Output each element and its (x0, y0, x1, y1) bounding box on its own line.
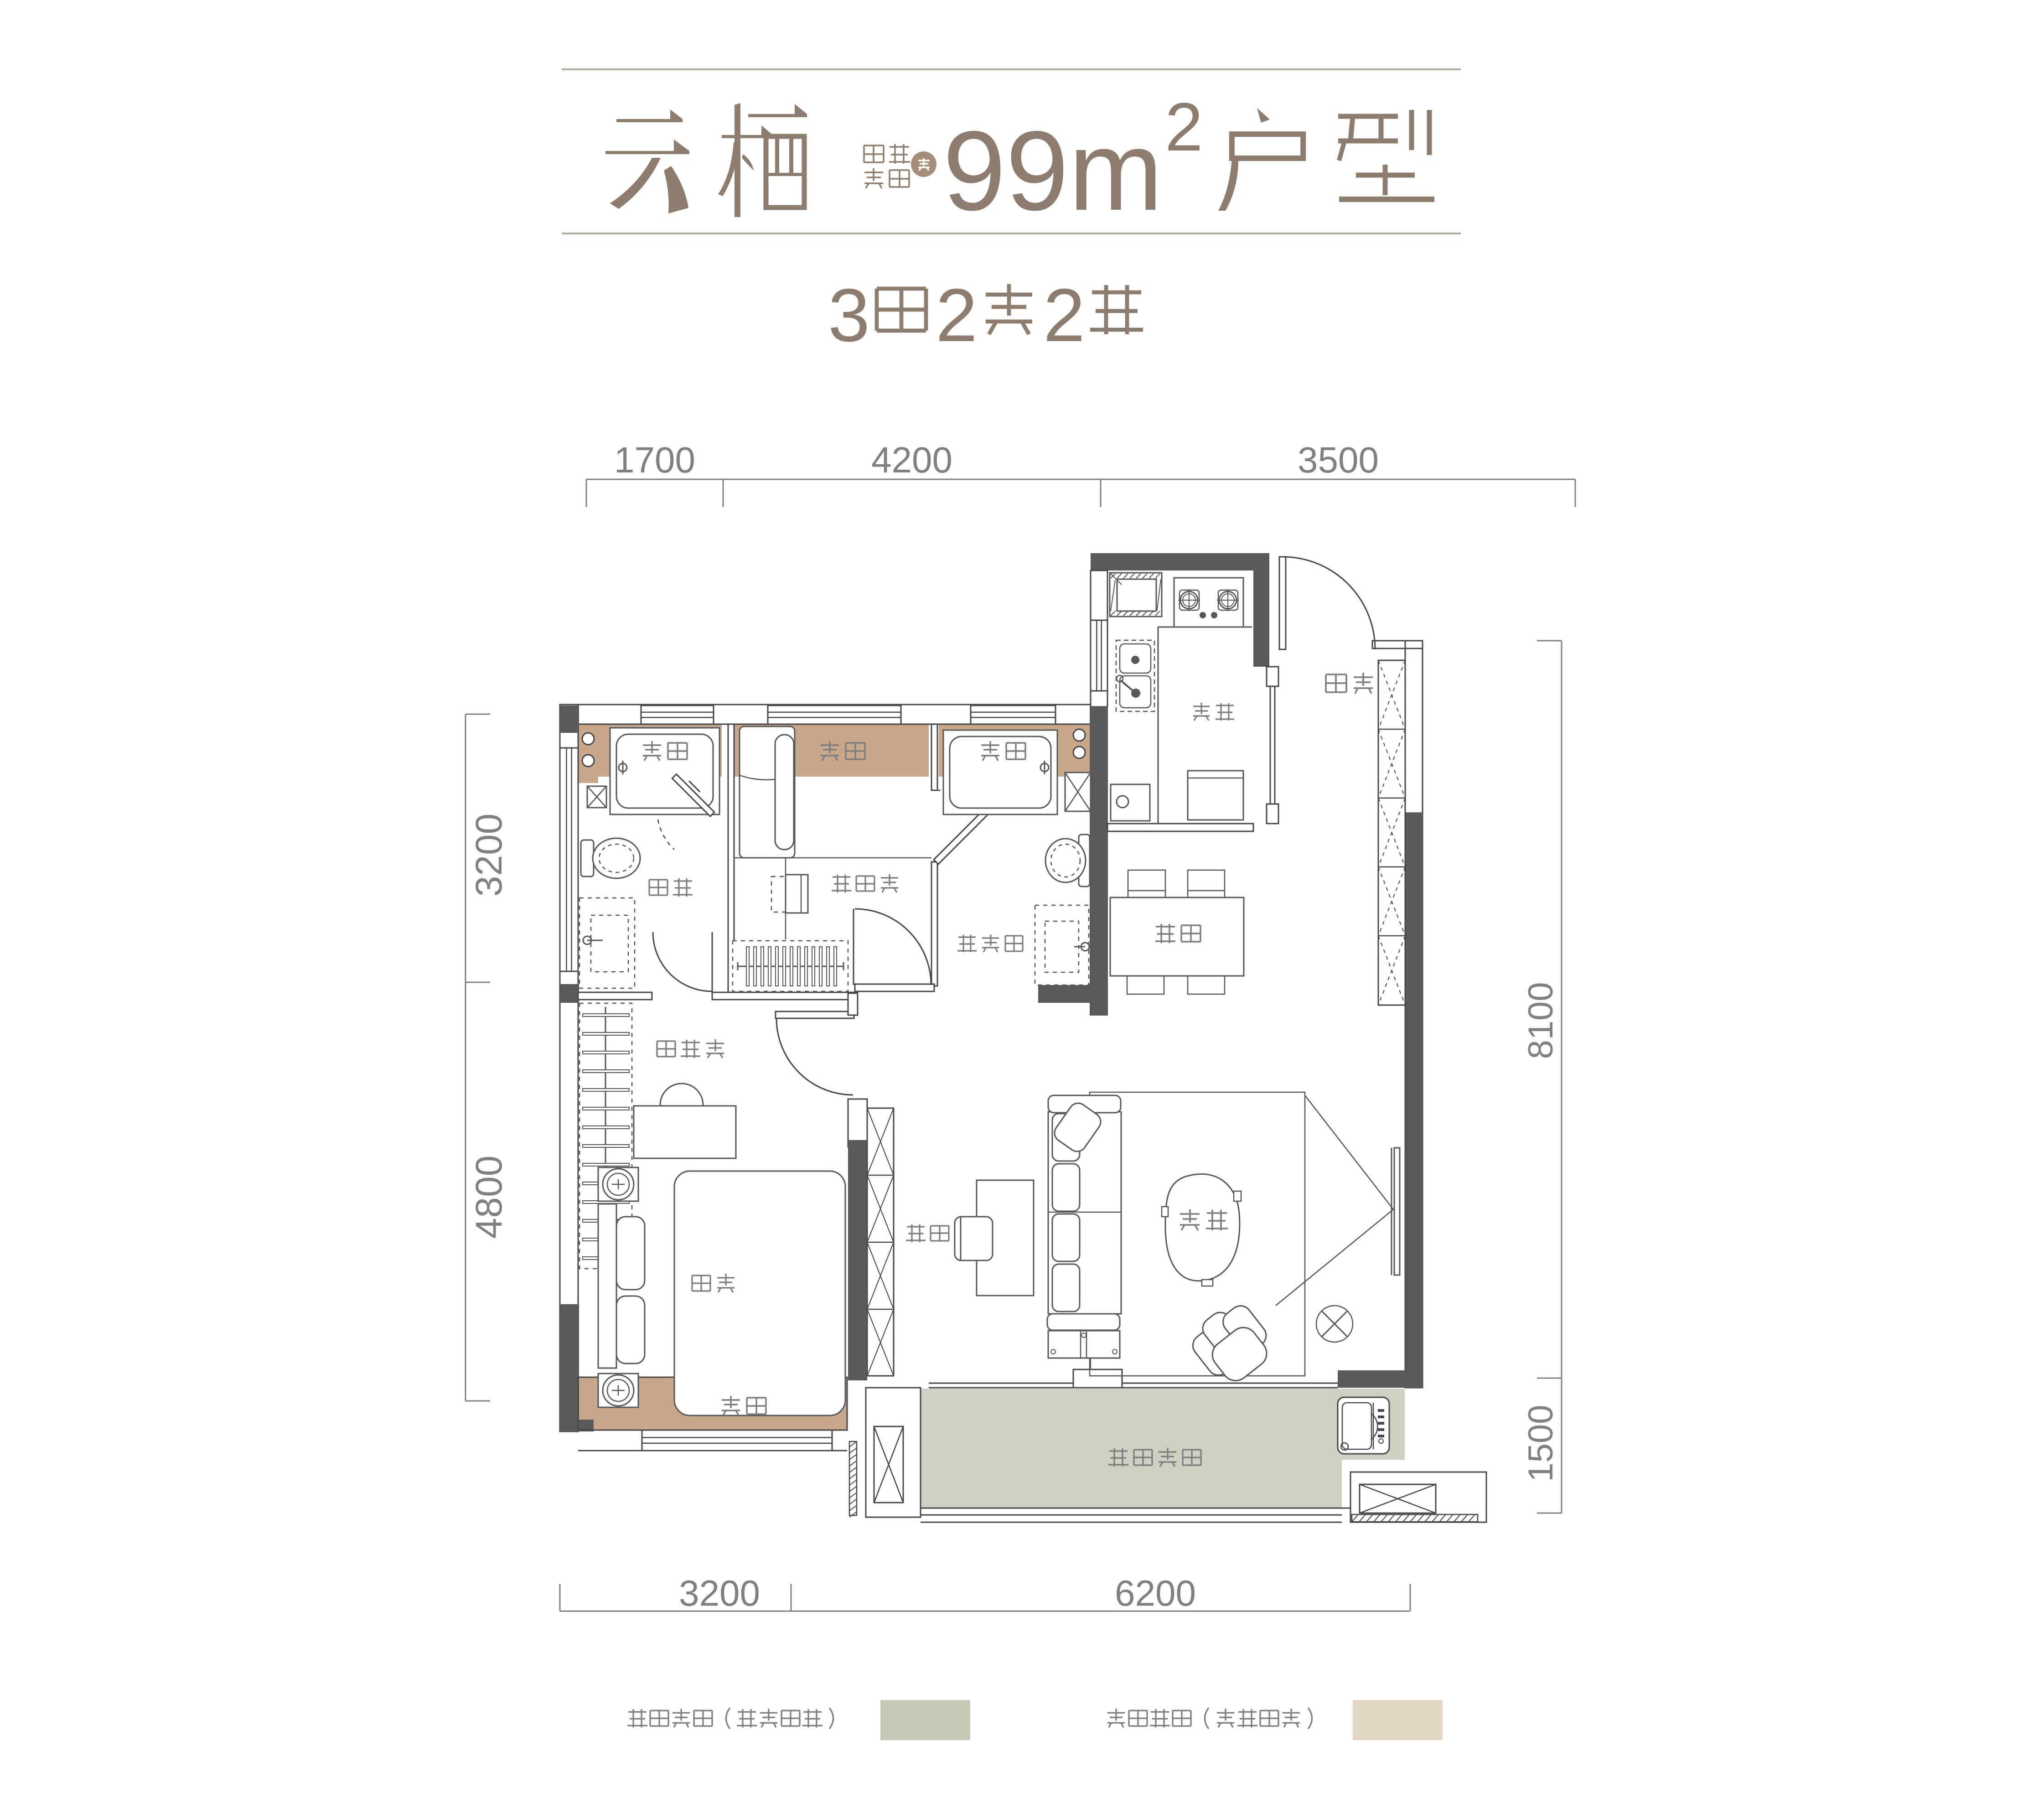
svg-text:2: 2 (1043, 273, 1085, 357)
svg-text:99m: 99m (943, 107, 1163, 234)
svg-text:2: 2 (936, 273, 978, 357)
svg-text:2: 2 (1165, 88, 1203, 165)
svg-text:4800: 4800 (468, 1156, 510, 1239)
svg-text:1700: 1700 (614, 440, 695, 480)
svg-text:3: 3 (828, 273, 870, 357)
svg-text:3200: 3200 (679, 1573, 760, 1613)
svg-text:3500: 3500 (1298, 440, 1379, 480)
svg-text:6200: 6200 (1115, 1573, 1196, 1613)
svg-text:4200: 4200 (871, 440, 952, 480)
svg-text:3200: 3200 (468, 814, 510, 897)
svg-text:8100: 8100 (1521, 982, 1560, 1059)
svg-text:1500: 1500 (1521, 1405, 1560, 1482)
